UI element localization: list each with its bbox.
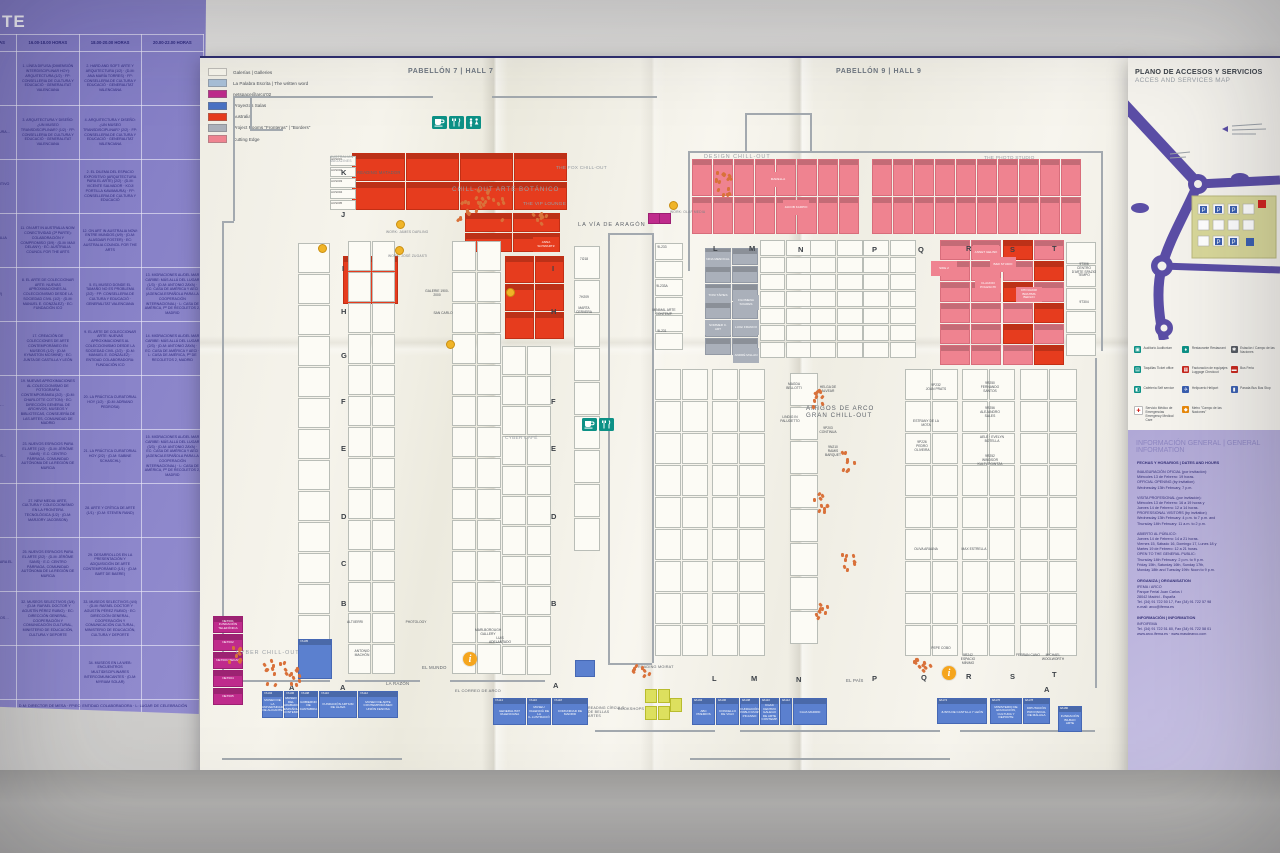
institution-booth: 9A104ABC PREMIOS	[692, 698, 715, 725]
gallery-booth	[810, 325, 836, 341]
gallery-booth	[739, 465, 765, 496]
aisle-label: BOOKSHOPS	[618, 707, 644, 711]
aisle-letter: T	[1052, 244, 1057, 253]
gallery-booth	[477, 520, 501, 550]
institution-booth: 7A106MUSEO DEL GRABADO ESPAÑOL CONTEMP.	[284, 691, 298, 718]
cutting-edge-booth	[1003, 345, 1033, 365]
aisle-letter: B	[551, 599, 556, 608]
gallery-booth	[1049, 593, 1077, 624]
aisle-letter: M	[751, 674, 757, 683]
gallery-booth	[905, 561, 931, 592]
gallery-booth	[655, 561, 681, 592]
booth-code-band	[873, 160, 891, 165]
artwork-marker	[506, 288, 515, 297]
gallery-booth-label: 9T304	[1071, 301, 1097, 305]
gallery-booth-label: 9P203 CONTINUA	[815, 427, 841, 435]
schedule-cell: 32. MUSEOS SELECTIVOS (3/4) · (D-M: RAFA…	[17, 592, 79, 646]
gallery-booth	[810, 257, 836, 273]
gallery-booth	[348, 241, 371, 271]
gallery-booth	[905, 497, 931, 528]
access-road-map: P P P P P	[1128, 88, 1280, 340]
gallery-booth	[932, 497, 958, 528]
booth-code-band	[978, 198, 996, 203]
gallery-booth	[1049, 401, 1077, 432]
schedule-cell: 4. ARQUITECTURA Y DISEÑO: ¿UN MUSEO TRAN…	[79, 106, 141, 160]
gallery-booth	[574, 382, 600, 415]
footprint-dot	[464, 200, 467, 204]
booth-code-band	[1035, 346, 1063, 351]
gallery-booth-label: 7H209	[571, 296, 597, 300]
gallery-booth	[962, 465, 988, 496]
schedule-cell: 21. LA PRÁCTICA CURATORIAL HOY (2/2) · (…	[79, 430, 141, 484]
gallery-booth	[712, 497, 738, 528]
gallery-booth	[739, 625, 765, 656]
service-label: Auditorio Auditorium	[1144, 346, 1173, 350]
aisle-letter: C	[341, 559, 346, 568]
institution-booth	[575, 660, 595, 677]
schedule-cell: 34. MUSEOS EN LA WEB: ENCUENTROS MULTIDI…	[79, 646, 141, 700]
aisle-letter: R	[966, 244, 971, 253]
cutting-edge-booth	[977, 197, 997, 234]
legend-swatch	[208, 124, 227, 132]
legend-item: Proyectos Salas	[208, 102, 310, 110]
gallery-booth	[298, 491, 330, 521]
wall-segment	[690, 758, 950, 760]
gallery-booth	[790, 543, 818, 576]
gray-booth-label: LUIGI FRANCO	[733, 320, 759, 335]
wall-segment	[652, 233, 654, 663]
gallery-booth	[1049, 529, 1077, 560]
info-line: Wednesday 13th February, 7 p.m.	[1137, 486, 1271, 491]
gallery-booth	[739, 561, 765, 592]
gallery-booth	[477, 272, 501, 302]
booth-code-band	[915, 160, 933, 165]
pink-booth-label: JACOB KARPIO	[783, 200, 809, 215]
schedule-cell: 25. NUEVOS ESPACIOS PARA EL ARTE (2/2) ·…	[17, 538, 79, 592]
institution-name: MUSEO DEL GRABADO ESPAÑOL CONTEMP.	[283, 697, 299, 714]
gallery-booth	[989, 465, 1015, 496]
gallery-booth	[655, 333, 683, 350]
schedule-cell: 5. EL MUSEO DONDE EL TAMAÑO NO ES PROBLE…	[79, 268, 141, 322]
schedule-cell: …EL ESPACIO EXPOSITIVO (1/2)	[0, 160, 17, 214]
institution-name: MUSEU VALENCIÀ DE LA IL·LUSTRACIÓ	[528, 706, 549, 720]
footprint-dot	[298, 679, 301, 683]
schedule-cell: 9. EL ARTE DE COLECCIONAR ARTE: NUEVAS A…	[79, 322, 141, 376]
booth-code-band	[941, 346, 969, 351]
access-map-title-es: PLANO DE ACCESOS Y SERVICIOS	[1135, 67, 1263, 76]
footprint-dot	[278, 662, 281, 666]
booth-code-band: 9A104	[693, 699, 714, 704]
gallery-booth	[502, 466, 526, 495]
booth-code-band	[1035, 262, 1063, 267]
aisle-letter: H	[341, 307, 346, 316]
information-point-icon: i	[942, 666, 956, 680]
gallery-booth	[502, 496, 526, 525]
institution-booth: 9A180FUNDACIÓN BILBAO ARTE	[1058, 706, 1082, 732]
aisle-letter: R	[966, 672, 971, 681]
gallery-booth-label: LUIS ADELANTADO	[487, 637, 513, 645]
service-label: Restaurante Restaurant	[1192, 346, 1226, 350]
legend-swatch	[208, 102, 227, 110]
gallery-booth	[1020, 593, 1048, 624]
footprint-dot	[820, 395, 824, 399]
gallery-booth	[452, 241, 476, 271]
gallery-booth	[786, 291, 811, 307]
footprint-dot	[467, 201, 470, 205]
footprint-dot	[647, 672, 651, 676]
artwork-marker-label: WORK: JAMES DARLING	[386, 230, 428, 234]
service-label: Helipuerto Heliport	[1192, 386, 1218, 390]
gallery-booth	[298, 460, 330, 490]
gallery-booth	[477, 241, 501, 271]
info-section: ORGANIZA | ORGANISATIONIFEMA / ARCOParqu…	[1137, 578, 1271, 610]
booth-code-band	[706, 267, 730, 272]
booth-code-band	[466, 234, 511, 239]
aisle-letter: N	[798, 245, 803, 254]
cutting-edge-booth	[1061, 197, 1081, 234]
gallery-booth	[348, 489, 371, 519]
booth-code-band	[798, 160, 816, 165]
gallery-booth	[739, 497, 765, 528]
gallery-booth-label: 9L233A	[649, 285, 675, 289]
wall-segment	[608, 233, 610, 663]
aisle-letter: I	[552, 264, 554, 273]
aisle-letter: Q	[921, 673, 927, 682]
gallery-booth	[712, 401, 738, 432]
footprint-dot	[824, 611, 827, 615]
aisle-letter: F	[341, 397, 346, 406]
schedule-cell	[141, 52, 203, 106]
schedule-cell: …NEW MEDIA…	[0, 484, 17, 538]
cafeteria-icon	[432, 116, 447, 129]
gallery-booth	[1049, 497, 1077, 528]
booth-code-band	[693, 198, 711, 203]
legend-item: Galerías | Galleries	[208, 68, 310, 76]
svg-text:P: P	[1217, 208, 1221, 214]
cutting-edge-booth	[914, 159, 934, 196]
gallery-booth	[452, 582, 476, 612]
service-item: ✱Estación / Campo de las Naciones	[1231, 346, 1276, 366]
footprint-dot	[474, 209, 477, 213]
gallery-booth	[348, 396, 371, 426]
footprint-dot	[266, 682, 269, 686]
institution-booth: 7A118COMUNIDAD DE MADRID	[552, 698, 588, 725]
gallery-booth	[682, 465, 708, 496]
gallery-booth	[837, 257, 863, 273]
gallery-booth	[863, 308, 889, 324]
gallery-booth	[760, 308, 785, 324]
wall-segment	[222, 221, 224, 681]
gallery-booth	[502, 346, 526, 375]
footprint-dot	[826, 605, 829, 609]
gallery-booth	[810, 308, 836, 324]
booth-code-band	[506, 313, 533, 318]
gallery-booth	[1020, 561, 1048, 592]
gallery-booth	[1049, 433, 1077, 464]
footprint-dot	[238, 647, 241, 651]
legend-label: Australia	[233, 114, 251, 119]
zone-label: THE VIP LOUNGE	[523, 202, 566, 207]
gallery-booth	[527, 496, 551, 525]
booth-code-band	[873, 198, 891, 203]
gallery-booth	[932, 529, 958, 560]
gallery-booth	[372, 458, 395, 488]
gallery-booth	[1020, 497, 1048, 528]
footprint-dot	[273, 672, 276, 676]
gallery-booth-label: MINIMAL ARTE CONTEMP.	[651, 309, 677, 317]
general-information-panel: INFORMACIÓN GENERAL | GENERAL INFORMATIO…	[1128, 430, 1280, 824]
booth-code-band	[840, 160, 858, 165]
gallery-booth-label: LINDIG IN PALUDETTO	[777, 416, 803, 424]
cutting-edge-booth	[692, 159, 712, 196]
australia-booth	[505, 256, 534, 283]
service-item: ✚Servicio Médico de Emergencias Emergenc…	[1134, 406, 1179, 426]
gallery-booth	[682, 369, 708, 400]
artwork-marker-label: WORK: JOSÉ ZUGASTI	[388, 254, 428, 258]
aisle-letter: T	[1052, 670, 1057, 679]
gallery-booth	[863, 342, 889, 358]
booth-code-band	[1035, 304, 1063, 309]
australia-booth	[535, 284, 564, 311]
bookshop-booth	[645, 689, 657, 703]
booth-code-band	[1062, 160, 1080, 165]
info-section-heading: ORGANIZA | ORGANISATION	[1137, 578, 1271, 583]
cutting-edge-booth	[971, 303, 1001, 323]
booth-code-band	[957, 198, 975, 203]
schedule-column-header: 16.00-18.00 HORAS	[17, 35, 79, 52]
schedule-column-header: 12.00-16.00 HORAS	[0, 35, 17, 52]
footprint-dot	[272, 664, 275, 668]
restrooms-icon	[466, 116, 481, 129]
gallery-booth	[298, 522, 330, 552]
australia-booth	[1034, 303, 1064, 323]
booth-code-band	[735, 160, 753, 165]
gallery-booth	[452, 551, 476, 581]
gallery-booth-label: 9R252 WINDSOR KULTURGINTZA	[977, 455, 1003, 466]
info-line: Thursday 14th February: 11 a.m. to 2 p.m…	[1137, 522, 1271, 527]
schedule-cell: 29. DESARROLLOS EN LA PRESENTACIÓN Y ADQ…	[79, 538, 141, 592]
gallery-booth-label: PHOTOLOGY	[403, 621, 429, 625]
gallery-booth-label: MARLBOROUGH GALLERY	[475, 629, 501, 637]
gallery-booth-label: SAN CARLO	[430, 312, 456, 316]
institution-booth: 9A106CONCELLO DE VIGO	[716, 698, 739, 725]
wall-segment	[595, 730, 715, 732]
gallery-booth	[372, 396, 395, 426]
schedule-cell: 2. HARD AND SOFT: ARTE Y ARQUITECTURA (1…	[79, 52, 141, 106]
australia-booth	[535, 312, 564, 339]
gallery-booth	[348, 272, 371, 302]
booth-code-band	[941, 304, 969, 309]
cutting-edge-booth	[839, 197, 859, 234]
gallery-booth	[655, 529, 681, 560]
gallery-booth	[452, 272, 476, 302]
service-label: Parada Bus Bus Stop	[1240, 386, 1270, 390]
info-line: e-mail: arco@ifema.es	[1137, 605, 1271, 610]
gallery-booth	[905, 529, 931, 560]
schedule-cell: 19. NUEVAS APROXIMACIONES AL COLECCIONIS…	[17, 376, 79, 430]
booth-code-band	[407, 154, 458, 159]
institution-booth: 9A108FUNDACIÓN PABLO RUIZ PICASSO	[740, 698, 759, 725]
schedule-cell	[141, 106, 203, 160]
gallery-booth	[452, 489, 476, 519]
schedule-cell: 20. LA PRÁCTICA CURATORIAL HOY (1/2) · (…	[79, 376, 141, 430]
gallery-booth	[890, 274, 916, 290]
gallery-booth	[790, 509, 818, 542]
gallery-booth	[372, 582, 395, 612]
footprint-dot	[283, 661, 287, 665]
gallery-booth	[890, 325, 916, 341]
booth-code-band	[714, 198, 732, 203]
gallery-booth	[452, 365, 476, 395]
legend-item: Australia	[208, 113, 310, 121]
cafeteria-icon	[582, 418, 597, 431]
info-section: VISITA PROFESIONAL (por invitación):Miér…	[1137, 496, 1271, 527]
zone-label: CYBER CAFÉ	[505, 436, 538, 441]
booth-code-band	[515, 154, 566, 159]
pink-booth-label: SIDE 2	[931, 261, 957, 276]
gallery-booth	[298, 553, 330, 583]
service-item: ▬Bus Feria	[1231, 366, 1276, 386]
booth-code-band: 7A110	[320, 692, 356, 697]
gallery-booth	[452, 334, 476, 364]
institution-name: JUNTA DE CASTILLA Y LEÓN	[941, 711, 983, 714]
cutting-edge-booth	[818, 197, 838, 234]
gallery-booth	[790, 577, 818, 610]
institution-name: MINISTERIO DE EDUCACIÓN, CULTURA Y DEPOR…	[992, 706, 1020, 720]
schedule-cell: …MUSEOS SELECTIVOS…	[0, 592, 17, 646]
gallery-booth	[502, 406, 526, 435]
aisle-label: EL PAÍS	[846, 678, 864, 683]
booth-code-band	[794, 699, 826, 704]
legend-swatch	[208, 79, 227, 87]
cutting-edge-booth	[998, 197, 1018, 234]
info-line: www.arco.ifema.es · www.masdearco.com	[1137, 632, 1271, 637]
gallery-booth	[1020, 625, 1048, 656]
booth-code-band	[461, 154, 512, 159]
pink-booth-label: B&D STUDIO	[990, 257, 1016, 272]
institution-name: FUNDACIÓN PABLO RUIZ PICASSO	[740, 708, 758, 718]
cutting-edge-booth	[935, 159, 955, 196]
gallery-booth	[786, 257, 811, 273]
gallery-booth	[989, 561, 1015, 592]
schedule-cell: …EL MUSEO…(1/2)	[0, 268, 17, 322]
gallery-booth	[502, 556, 526, 585]
aisle-letter: L	[712, 674, 717, 683]
booth-code-band	[819, 160, 837, 165]
booth-code-band	[894, 160, 912, 165]
booth-code-band	[706, 339, 730, 344]
cutting-edge-booth	[956, 159, 976, 196]
cutting-edge-booth	[818, 159, 838, 196]
pink-booth-label: MARELLA	[765, 172, 791, 187]
gallery-booth	[477, 396, 501, 426]
gallery-booth	[348, 334, 371, 364]
booth-code-band	[777, 160, 795, 165]
gallery-booth	[452, 458, 476, 488]
gallery-booth	[1049, 369, 1077, 400]
bookshop-booth	[670, 698, 682, 712]
gallery-booth	[760, 257, 785, 273]
gallery-booth	[810, 240, 836, 256]
table-surface-shadow	[0, 770, 1280, 853]
legend-label: La Palabra Escrita | The written word	[233, 81, 308, 86]
gallery-booth	[477, 365, 501, 395]
aisle-letter: E	[551, 444, 556, 453]
footprint-dot	[841, 553, 844, 557]
gallery-booth-label: 9P232 JOAN PRATS	[923, 384, 949, 392]
gallery-booth	[452, 427, 476, 457]
gallery-booth	[348, 458, 371, 488]
gallery-booth	[890, 291, 916, 307]
gallery-booth	[372, 303, 395, 333]
gallery-booth	[298, 584, 330, 614]
gallery-booth	[810, 342, 836, 358]
service-item: ♦Restaurante Restaurant	[1182, 346, 1227, 366]
gallery-booth	[905, 465, 931, 496]
bookshop-booth	[658, 689, 670, 703]
aisle-letter: P	[872, 674, 877, 683]
australia-booth	[460, 153, 513, 181]
footprint-dot	[273, 683, 277, 687]
aisle-label: READING MATADOR	[357, 170, 401, 175]
institution-booth: 7A116MUSEU VALENCIÀ DE LA IL·LUSTRACIÓ	[527, 698, 551, 725]
footprint-dot	[295, 667, 299, 671]
schedule-cell: 23. NUEVOS ESPACIOS PARA EL ARTE (1/2) ·…	[17, 430, 79, 484]
service-icon: ▬	[1231, 366, 1238, 373]
booth-code-band: 9A108	[741, 699, 758, 704]
artwork-marker	[669, 201, 678, 210]
booth-code-band	[536, 257, 563, 262]
gallery-booth	[989, 497, 1015, 528]
service-icon: ◧	[1134, 386, 1141, 393]
aisle-letter: J	[341, 210, 345, 219]
footprint-dot	[269, 659, 272, 663]
gallery-booth	[760, 240, 785, 256]
schedule-cell: 33. MUSEOS SELECTIVOS (4/4) · (D-M: RAFA…	[79, 592, 141, 646]
cutting-edge-booth	[935, 197, 955, 234]
gallery-booth	[890, 240, 916, 256]
wall-segment	[740, 730, 940, 732]
gallery-booth	[1066, 242, 1096, 264]
service-item: ▣Auditorio Auditorium	[1134, 346, 1179, 366]
booth-code-band	[936, 198, 954, 203]
gray-booth-label: NINA MENOCAL	[705, 252, 731, 267]
zone-label: DESIGN CHILL-OUT	[704, 154, 771, 160]
aus-magazine-code: AUS003	[331, 179, 342, 183]
information-point-icon: i	[463, 652, 477, 666]
gallery-booth	[932, 593, 958, 624]
service-icon: ◆	[1182, 406, 1189, 413]
gallery-booth	[760, 342, 785, 358]
footprint-dot	[642, 668, 646, 672]
project-room-booth	[732, 266, 758, 283]
aisle-letter: D	[551, 512, 556, 521]
gallery-booth	[837, 325, 863, 341]
booth-code-band	[972, 325, 1000, 330]
schedule-cell: 11. ON ART IN AUSTRALIA NOW: CONECTIVIDA…	[17, 214, 79, 268]
wall-segment	[222, 221, 234, 223]
aisle-letter: Q	[918, 245, 924, 254]
schedule-cell	[141, 484, 203, 538]
gallery-booth	[298, 305, 330, 335]
institution-name: FUNDACIÓN ARTIUM DE ÁLAVA	[321, 703, 355, 710]
gallery-booth	[682, 401, 708, 432]
footprint-dot	[290, 682, 293, 686]
gallery-booth	[348, 365, 371, 395]
australia-booth	[1034, 345, 1064, 365]
gallery-booth-label: 9R256 ALEJANDRO SALES	[977, 407, 1003, 418]
booth-code-band: 7A114	[494, 699, 525, 704]
